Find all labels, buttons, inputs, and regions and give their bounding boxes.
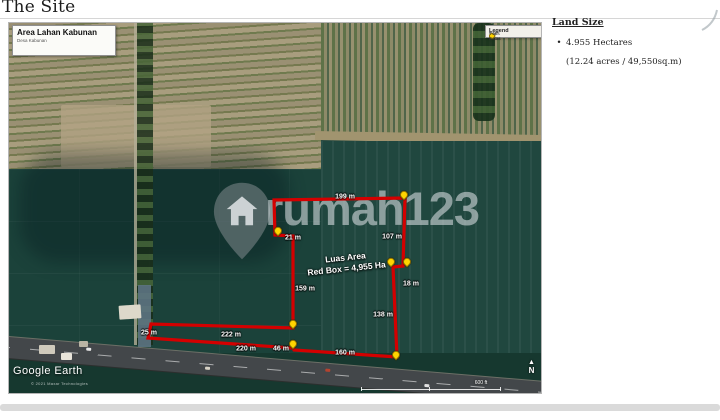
boundary-pin-icon <box>272 225 283 236</box>
legend: Legend Garis BatasTitik Batas <box>485 25 542 38</box>
bullet: • <box>552 38 566 48</box>
bottom-divider-bar <box>0 404 720 411</box>
boundary-pin-icon <box>385 256 396 267</box>
boundary-pin-icon <box>390 349 401 360</box>
boundary-pin-icon <box>287 338 298 349</box>
scale-bar <box>361 389 501 390</box>
map-title-box: Area Lahan Kabunan Desa Kabunan <box>12 25 116 56</box>
land-size-conversion: (12.24 acres / 49,550sq.m) <box>552 57 717 67</box>
scale-label: 600 ft <box>475 380 488 386</box>
land-size-heading: Land Size <box>552 17 717 28</box>
page-title: The Site <box>2 0 75 17</box>
map-subtitle: Desa Kabunan <box>17 38 111 43</box>
boundary-pin-icon <box>398 189 409 200</box>
north-letter: N <box>528 367 535 375</box>
north-arrow-icon: ▲ <box>528 359 535 366</box>
land-size-value: •4.955 Hectares <box>552 38 717 48</box>
map-title: Area Lahan Kabunan <box>17 28 111 37</box>
satellite-map-image: rumah123 199 m21 m107 m159 m18 m138 m222… <box>8 22 542 394</box>
land-size-hectares: 4.955 Hectares <box>566 38 632 48</box>
north-indicator: ▲ N <box>528 359 535 375</box>
scale-bar-tick <box>429 387 430 391</box>
land-size-panel: Land Size •4.955 Hectares (12.24 acres /… <box>552 17 717 76</box>
google-earth-logo: Google Earth <box>13 365 83 377</box>
boundary-pin-icon <box>401 256 412 267</box>
legend-item-label: Titik Batas <box>489 31 501 41</box>
boundary-pins <box>9 23 541 393</box>
page: The Site rumah123 <box>0 0 720 420</box>
boundary-pin-icon <box>287 318 298 329</box>
imagery-attribution: © 2021 Maxar Technologies <box>31 381 88 386</box>
